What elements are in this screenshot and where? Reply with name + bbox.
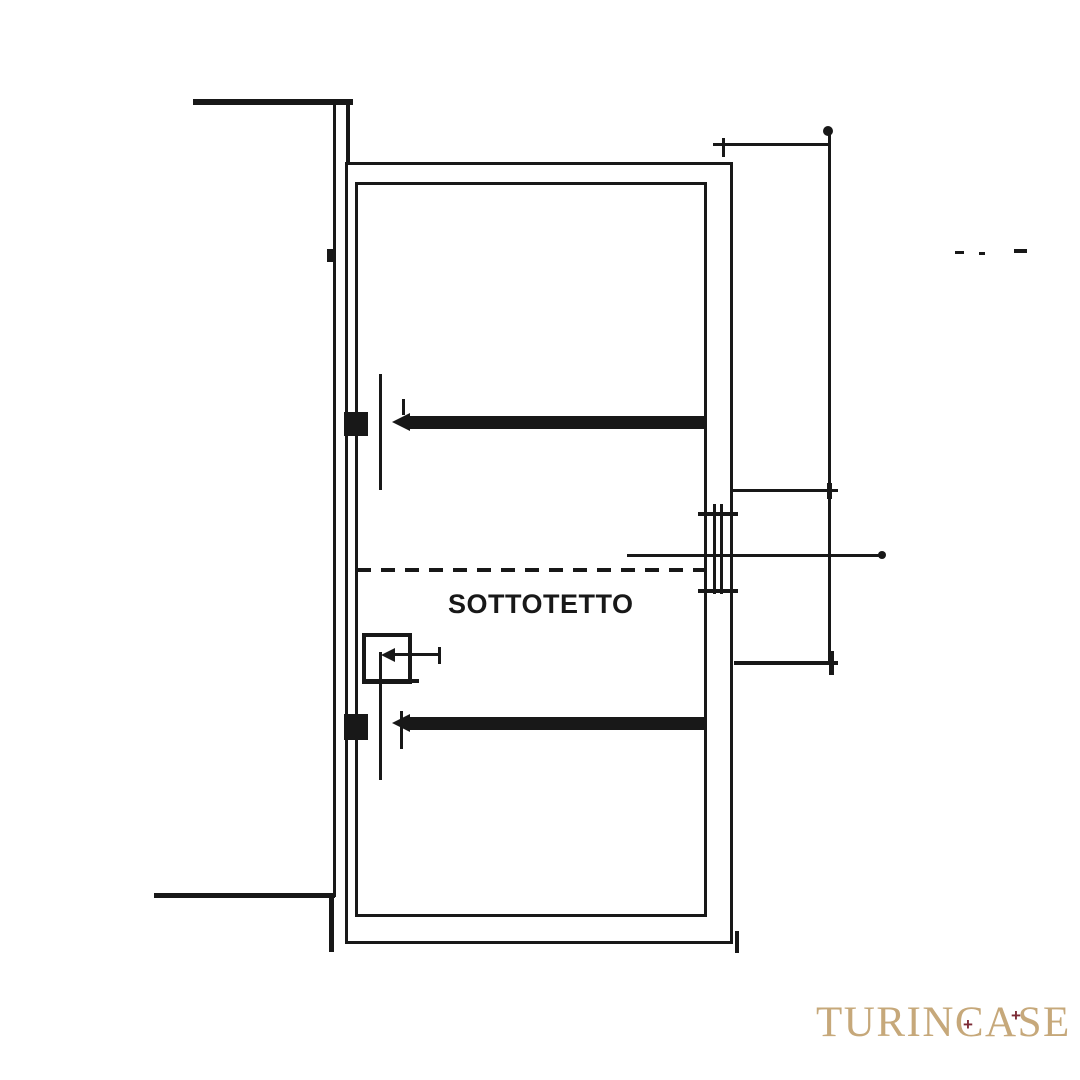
mid-dimension-line: [733, 489, 838, 492]
right-dimension-line: [828, 131, 831, 665]
upper-beam-arrowhead: [392, 413, 410, 431]
bottom-left-wall-drop: [329, 894, 334, 952]
top-neighbor-wall-spur: [193, 99, 353, 105]
shaft-square-base-extension: [362, 679, 419, 683]
left-site-boundary-line: [333, 103, 336, 897]
window-top-tick: [698, 512, 738, 516]
bottom-neighbor-wall-spur: [154, 893, 335, 898]
floor-plan: SOTTOTETTO: [0, 0, 1080, 1080]
watermark-text: TURINCASE: [816, 998, 1071, 1047]
page: { "page": { "background": "#ffffff" }, "…: [0, 0, 1080, 1080]
lower-beam: [408, 717, 707, 730]
roof-dashed-line: [357, 568, 705, 572]
lower-beam-tick: [400, 711, 403, 749]
ink-speck-3: [1014, 249, 1027, 253]
window-pane-line-2: [720, 504, 723, 594]
mid-dimension-tick: [827, 483, 832, 499]
room-label: SOTTOTETTO: [448, 589, 634, 620]
top-dimension-line: [713, 143, 831, 146]
upper-beam: [408, 416, 707, 429]
bottom-dimension-line: [734, 661, 838, 665]
window-bottom-tick: [698, 589, 738, 593]
ink-speck-1: [955, 251, 964, 254]
wall-hatch-lower: [344, 714, 368, 740]
shaft-arrowhead: [381, 648, 395, 662]
bottom-right-corner-tick: [735, 931, 739, 953]
bottom-dimension-tick: [829, 651, 834, 675]
window-pane-line-1: [713, 504, 716, 594]
ink-speck-2: [979, 252, 985, 255]
shaft-arrow-line: [387, 653, 441, 656]
top-left-wall-connector: [346, 103, 350, 165]
inner-wall-rect: [355, 182, 707, 917]
watermark-plus-icon: +: [963, 1016, 973, 1033]
wall-hatch-small: [327, 249, 336, 262]
upper-beam-tick: [402, 399, 405, 415]
dimension-leader-line: [627, 554, 885, 557]
top-dimension-tick: [722, 138, 725, 157]
shaft-arrow-tick: [438, 647, 441, 664]
right-dimension-top-dot: [823, 126, 833, 136]
wall-hatch-upper: [344, 412, 368, 436]
dimension-leader-end-dot: [878, 551, 886, 559]
upper-section-line: [379, 374, 382, 490]
watermark-plus-icon: +: [1011, 1007, 1021, 1024]
